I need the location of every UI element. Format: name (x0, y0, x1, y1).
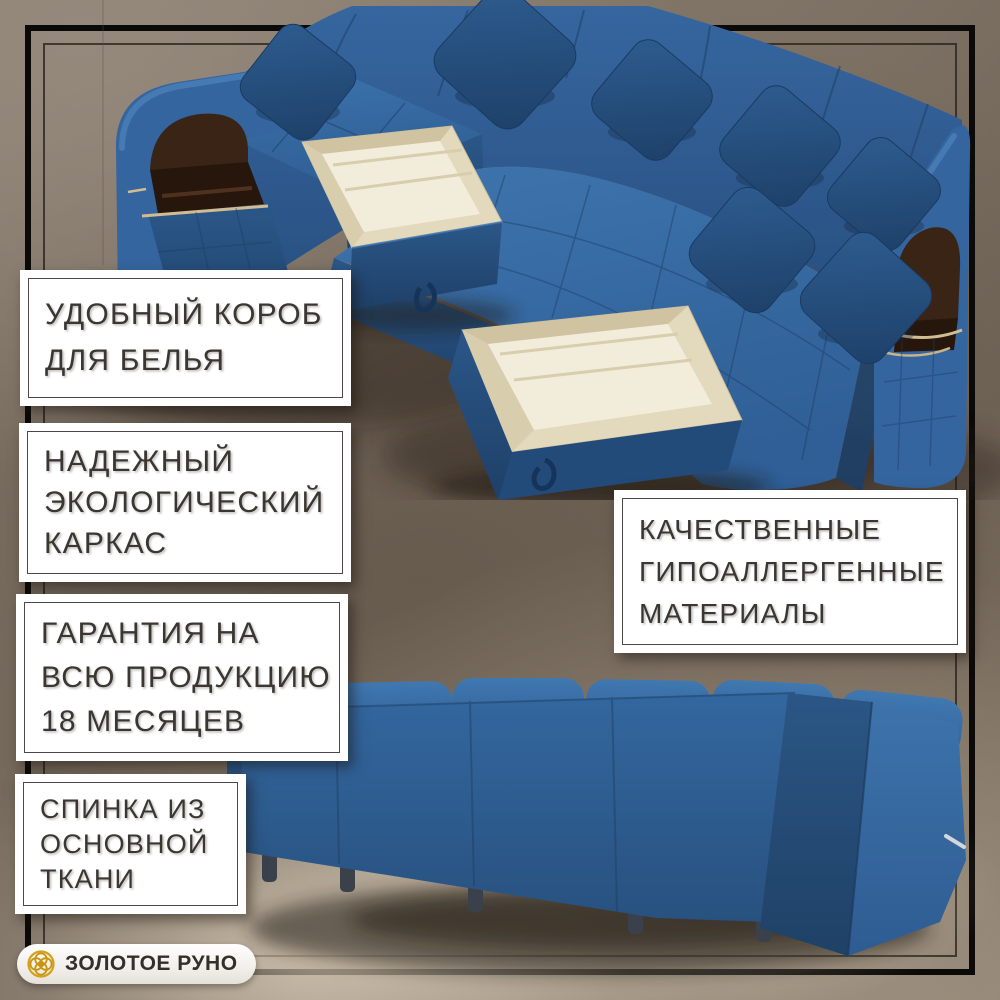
callout-line: МАТЕРИАЛЫ (639, 593, 945, 635)
callout-border: КАЧЕСТВЕННЫЕ ГИПОАЛЛЕРГЕННЫЕ МАТЕРИАЛЫ (622, 498, 958, 645)
callout-border: НАДЕЖНЫЙ ЭКОЛОГИЧЕСКИЙ КАРКАС (27, 431, 343, 574)
callout-backrest-fabric: СПИНКА ИЗ ОСНОВНОЙ ТКАНИ (15, 774, 246, 914)
callout-materials: КАЧЕСТВЕННЫЕ ГИПОАЛЛЕРГЕННЫЕ МАТЕРИАЛЫ (614, 490, 966, 653)
callout-line: ГАРАНТИЯ НА (41, 612, 327, 656)
callout-line: 18 МЕСЯЦЕВ (41, 700, 327, 744)
product-infographic: УДОБНЫЙ КОРОБ ДЛЯ БЕЛЬЯ НАДЕЖНЫЙ ЭКОЛОГИ… (0, 0, 1000, 1000)
callout-line: СПИНКА ИЗ (40, 792, 225, 827)
callout-line: ВСЮ ПРОДУКЦИЮ (41, 656, 327, 700)
callout-line: КАРКАС (44, 523, 330, 564)
callout-line: УДОБНЫЙ КОРОБ (45, 292, 330, 338)
brand-badge: ЗОЛОТОЕ РУНО (17, 944, 256, 984)
brand-name: ЗОЛОТОЕ РУНО (65, 952, 238, 976)
callout-border: СПИНКА ИЗ ОСНОВНОЙ ТКАНИ (23, 782, 238, 906)
callout-line: ДЛЯ БЕЛЬЯ (45, 338, 330, 384)
callout-line: НАДЕЖНЫЙ (44, 441, 330, 482)
golden-fleece-rosette-icon (26, 949, 56, 979)
callout-line: ОСНОВНОЙ (40, 827, 225, 862)
callout-line: ЭКОЛОГИЧЕСКИЙ (44, 482, 330, 523)
callout-border: ГАРАНТИЯ НА ВСЮ ПРОДУКЦИЮ 18 МЕСЯЦЕВ (24, 602, 340, 753)
callout-eco-frame: НАДЕЖНЫЙ ЭКОЛОГИЧЕСКИЙ КАРКАС (19, 423, 351, 582)
callout-line: КАЧЕСТВЕННЫЕ (639, 509, 945, 551)
callout-warranty: ГАРАНТИЯ НА ВСЮ ПРОДУКЦИЮ 18 МЕСЯЦЕВ (16, 594, 348, 761)
callout-linen-storage: УДОБНЫЙ КОРОБ ДЛЯ БЕЛЬЯ (20, 270, 351, 406)
callout-line: ГИПОАЛЛЕРГЕННЫЕ (639, 551, 945, 593)
callout-border: УДОБНЫЙ КОРОБ ДЛЯ БЕЛЬЯ (28, 278, 343, 398)
callout-line: ТКАНИ (40, 862, 225, 897)
